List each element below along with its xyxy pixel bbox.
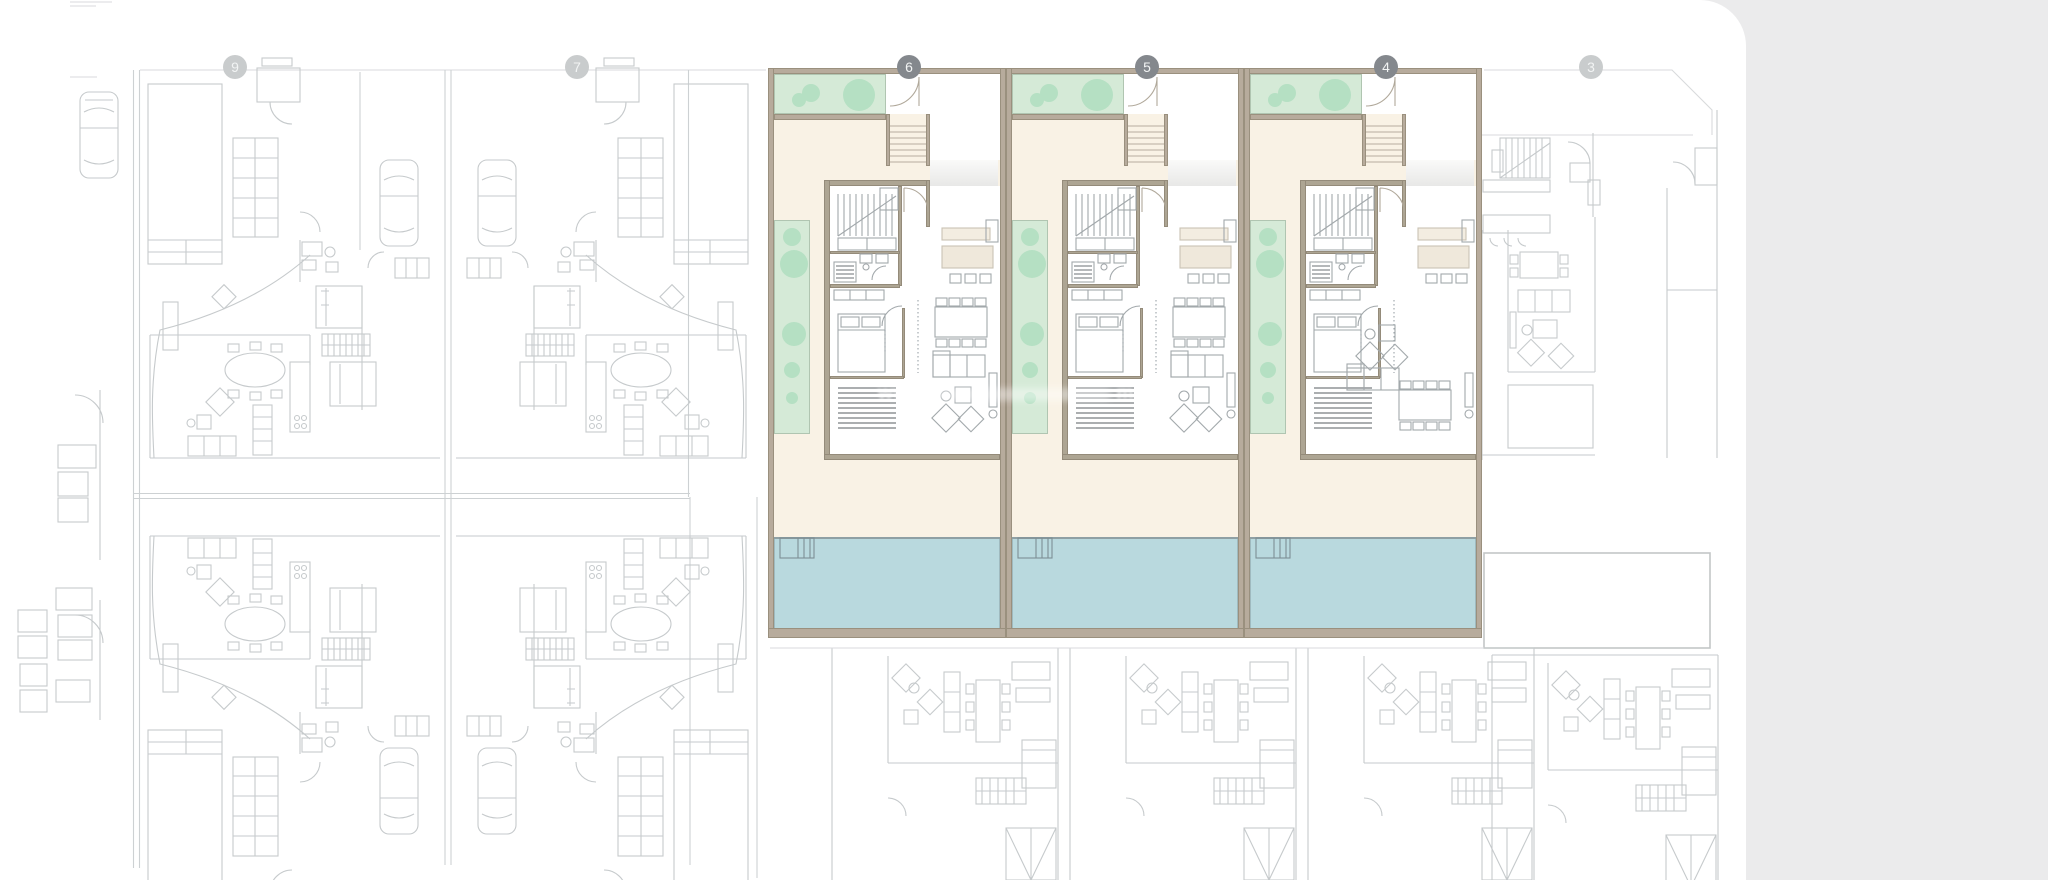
page-backdrop-panel [1746,0,2048,880]
villa-unit-4[interactable] [1244,68,1482,638]
unit-badge-6[interactable]: 6 [897,55,921,79]
unit-badge-5[interactable]: 5 [1135,55,1159,79]
watermark-right: ma [1117,383,1146,405]
watermark-left: www [878,383,925,405]
site-plan-canvas: 654973 www ma [0,0,2048,880]
unit-badge-9: 9 [223,55,247,79]
unit-badge-7: 7 [565,55,589,79]
unit-badge-4[interactable]: 4 [1374,55,1398,79]
card-rounded-corner [1700,0,1746,46]
unit-floorplan-art [1006,68,1244,638]
unit-badge-3: 3 [1579,55,1603,79]
villa-unit-5[interactable] [1006,68,1244,638]
villa-unit-6[interactable] [768,68,1006,638]
watermark-smear [931,388,1110,401]
unit-floorplan-art [768,68,1006,638]
watermark: www ma [878,382,1146,406]
unit-floorplan-art [1244,68,1482,638]
